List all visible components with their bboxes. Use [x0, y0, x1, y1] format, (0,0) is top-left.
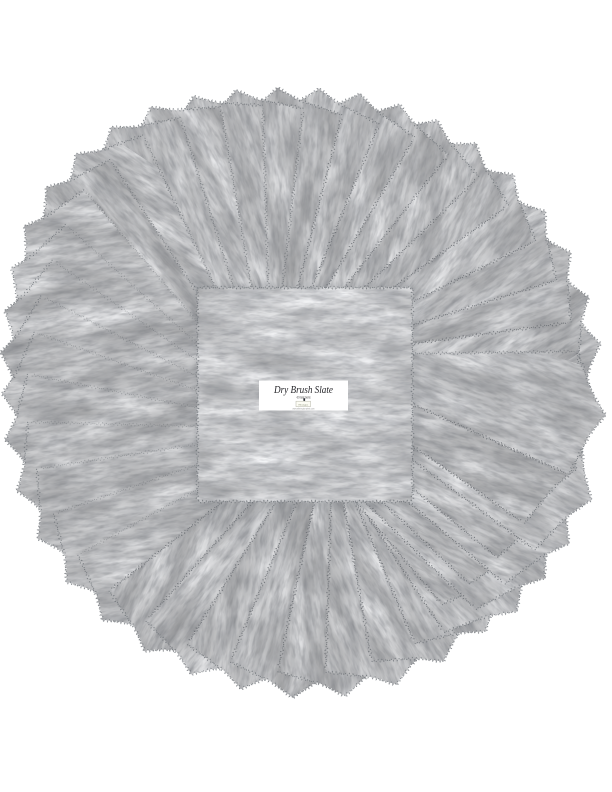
svg-text:www.wilmingtonprints.com: www.wilmingtonprints.com — [293, 407, 315, 410]
svg-text:Dry Brush Slate: Dry Brush Slate — [273, 385, 333, 396]
svg-text:Wilmington: Wilmington — [298, 403, 309, 406]
